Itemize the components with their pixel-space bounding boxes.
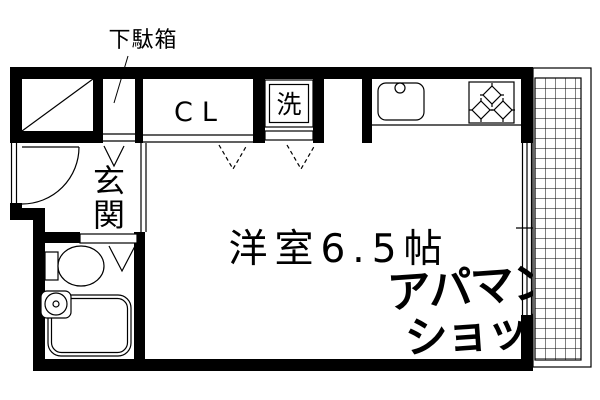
wall-under-shaft	[10, 131, 103, 143]
wall-kitchen-left	[362, 79, 372, 143]
toilet-icon	[45, 246, 104, 286]
bath-faucet	[45, 293, 67, 315]
wall-cl-right	[253, 79, 265, 143]
floor-plan-page: アパマン ショップ	[0, 0, 600, 400]
wall-cl-left	[135, 79, 143, 143]
wall-top	[10, 67, 533, 79]
toilet-bowl	[58, 246, 104, 286]
main-room-label: 洋室6.5帖	[228, 227, 449, 272]
wall-right-upper	[521, 67, 533, 143]
wall-shaft-right	[93, 67, 103, 143]
wall-washer-right	[313, 79, 324, 143]
shoe-cabinet-label: 下駄箱	[108, 28, 177, 53]
sink-faucet	[395, 83, 405, 93]
kitchen-sink-icon	[378, 83, 424, 120]
entrance-label: 玄関	[88, 164, 126, 232]
closet-label: CL	[174, 97, 226, 128]
wall-bottom	[33, 359, 533, 371]
wall-bathroom-top	[33, 232, 80, 243]
balcony-grid	[535, 78, 581, 360]
toilet-tank	[45, 252, 58, 280]
washer-label: 洗	[276, 90, 301, 119]
floor-plan-svg: アパマン ショップ	[0, 0, 600, 400]
bathroom-door	[80, 234, 137, 243]
stove-icon	[469, 82, 515, 123]
wall-bathroom-right	[134, 232, 145, 371]
wall-right-lower	[521, 315, 533, 371]
balcony	[533, 68, 591, 367]
